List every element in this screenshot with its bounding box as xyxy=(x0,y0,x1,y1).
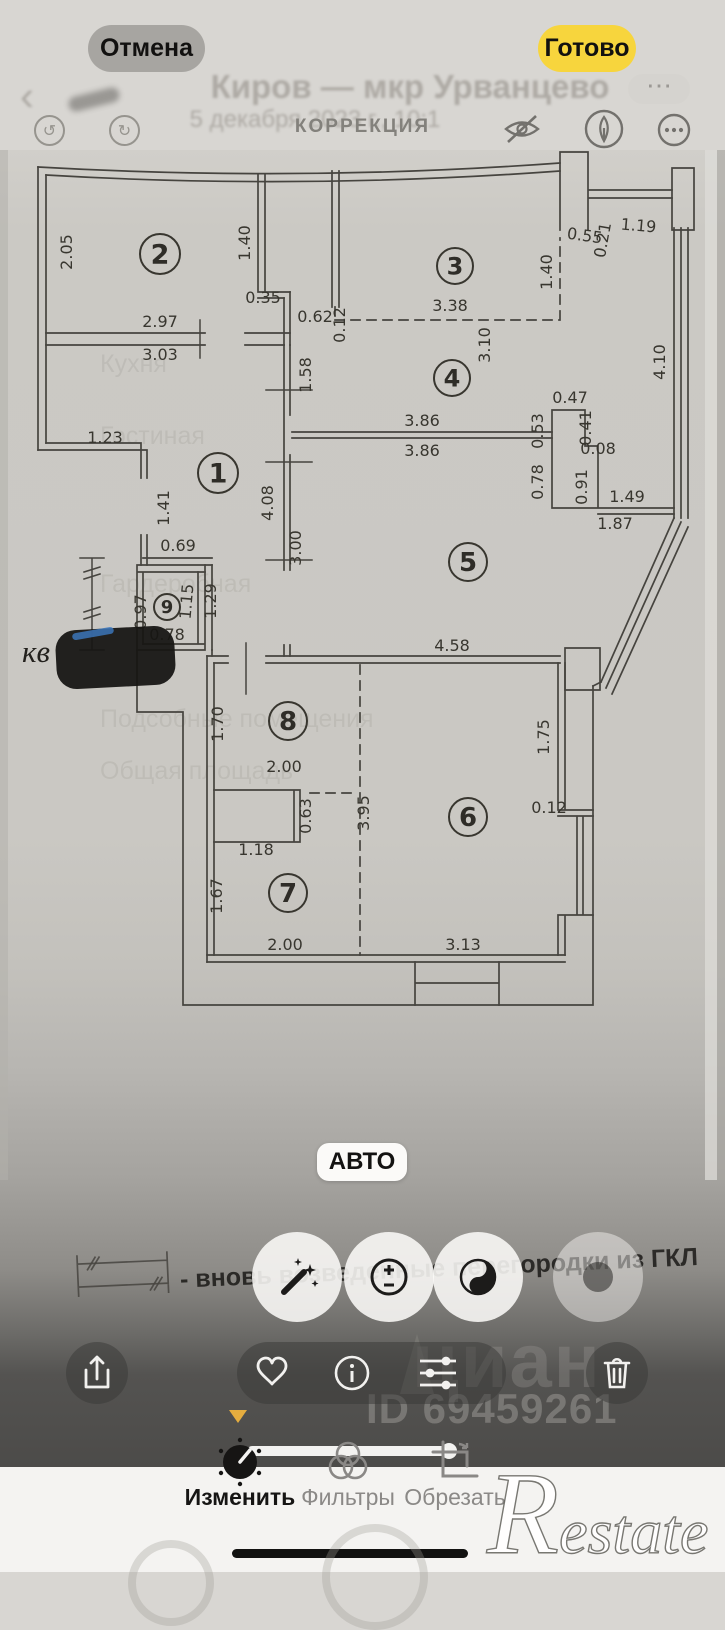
crop-icon[interactable] xyxy=(429,1438,481,1490)
ghost-more-pill: ⋯ xyxy=(628,74,690,104)
paper-edge-shadow xyxy=(717,150,725,1180)
share-icon[interactable] xyxy=(75,1351,119,1395)
exposure-icon xyxy=(361,1249,417,1305)
magic-wand-icon xyxy=(269,1249,325,1305)
exposure-button[interactable] xyxy=(344,1232,434,1322)
ghost-listing-title: Киров — мкр Урванцево xyxy=(140,68,680,106)
watermark-fragment xyxy=(128,1540,214,1626)
cancel-button[interactable]: Отмена xyxy=(88,25,205,72)
restate-watermark: Restate xyxy=(487,1455,708,1573)
auto-enhance-button[interactable] xyxy=(252,1232,342,1322)
yin-yang-icon xyxy=(450,1249,506,1305)
edit-dial-icon[interactable] xyxy=(214,1436,266,1488)
more-options-icon[interactable] xyxy=(656,112,692,148)
highlights-icon xyxy=(570,1249,626,1305)
markup-pen-icon[interactable] xyxy=(583,108,625,150)
info-icon[interactable] xyxy=(330,1351,374,1395)
black-and-white-button[interactable] xyxy=(433,1232,523,1322)
paper-edge-right xyxy=(705,150,717,1180)
watermark-fragment xyxy=(322,1524,428,1630)
paper-edge-left xyxy=(0,150,8,1180)
ink-smudge xyxy=(67,86,121,113)
adjustments-sliders-icon[interactable] xyxy=(416,1351,460,1395)
trash-icon[interactable] xyxy=(595,1351,639,1395)
filters-icon[interactable] xyxy=(324,1438,372,1486)
favorite-heart-icon[interactable] xyxy=(250,1351,294,1395)
done-button[interactable]: Готово xyxy=(538,25,636,72)
ios-photo-edit-screen: { "header": { "cancel": "Отмена", "done"… xyxy=(0,0,725,1572)
adjustment-value-marker xyxy=(229,1410,247,1423)
auto-button[interactable]: АВТО xyxy=(317,1143,407,1181)
ghost-back-chevron: ‹ xyxy=(20,72,34,120)
highlights-button[interactable] xyxy=(553,1232,643,1322)
hide-adjustments-icon[interactable] xyxy=(498,108,546,150)
